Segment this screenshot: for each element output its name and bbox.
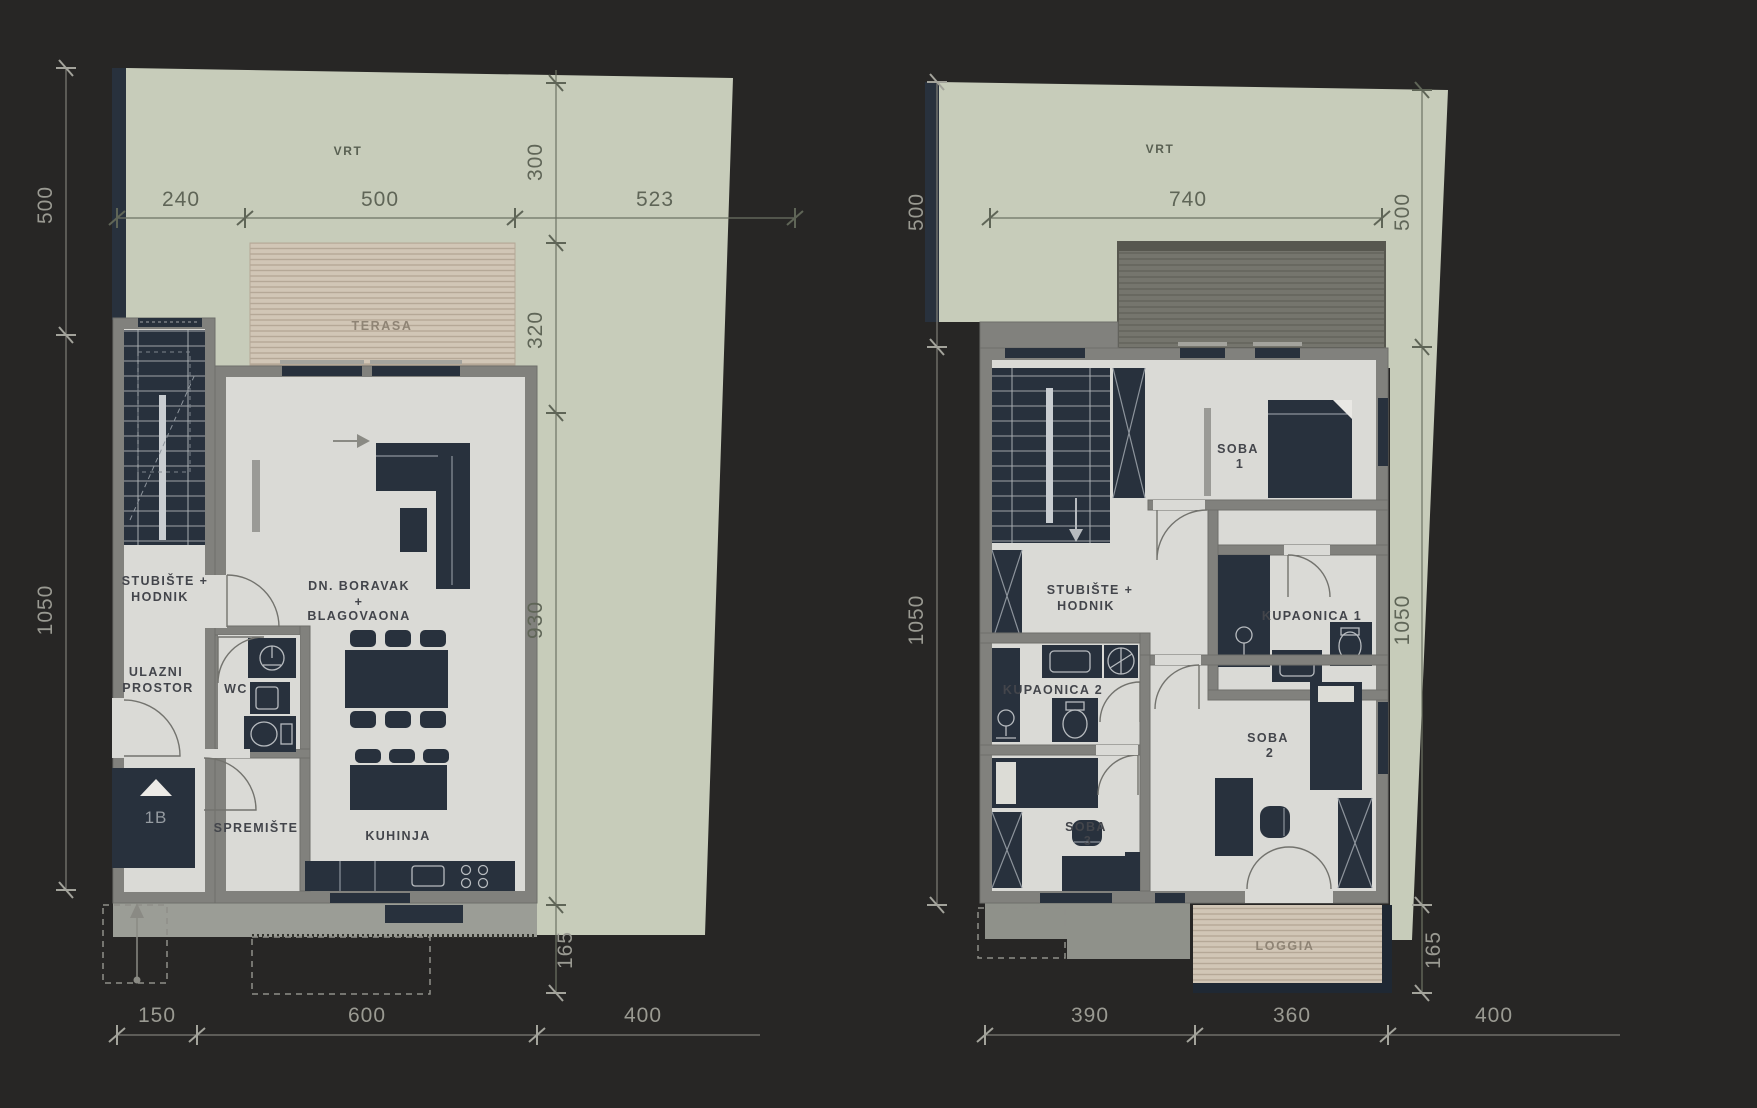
window bbox=[282, 366, 362, 376]
door-gap bbox=[1155, 655, 1201, 665]
kitchen-island bbox=[350, 749, 449, 810]
room-label-living-2: + bbox=[355, 595, 364, 609]
window bbox=[372, 366, 460, 376]
dim-523: 523 bbox=[636, 188, 674, 211]
entry-unit-block: 1B bbox=[112, 768, 195, 868]
dim-500t: 500 bbox=[361, 188, 399, 211]
dim-150: 150 bbox=[138, 1004, 176, 1027]
room-label-soba1-a: SOBA bbox=[1217, 442, 1259, 456]
garden-label: VRT bbox=[1146, 142, 1175, 156]
dim-930: 930 bbox=[524, 601, 547, 639]
doormat bbox=[385, 905, 463, 923]
terrace-area bbox=[250, 243, 515, 365]
wall bbox=[980, 633, 1150, 643]
chair-icon bbox=[1260, 806, 1290, 838]
entry-door-gap bbox=[112, 698, 125, 758]
window bbox=[1180, 348, 1225, 358]
bed bbox=[1268, 400, 1352, 498]
staircase bbox=[124, 330, 205, 545]
pillow bbox=[996, 762, 1016, 804]
window bbox=[330, 893, 410, 903]
dim-240: 240 bbox=[162, 188, 200, 211]
room-label-living-3: BLAGOVAONA bbox=[307, 609, 410, 623]
window bbox=[1040, 893, 1112, 903]
room-label-stairs-1: STUBIŠTE + bbox=[122, 573, 209, 588]
garden-boundary-wall bbox=[112, 68, 126, 320]
room-label-stairs-2: HODNIK bbox=[131, 590, 189, 604]
door-gap bbox=[1284, 545, 1330, 555]
dim-165: 165 bbox=[554, 931, 577, 969]
room-label-soba1-b: 1 bbox=[1236, 457, 1244, 471]
shower-icon bbox=[1104, 645, 1138, 678]
room-label-stairs-2: HODNIK bbox=[1057, 599, 1115, 613]
room-label-soba2-b: 2 bbox=[1266, 746, 1274, 760]
window-sill bbox=[1253, 342, 1302, 346]
window-sill bbox=[1178, 342, 1227, 346]
staircase bbox=[992, 368, 1110, 543]
dim-165: 165 bbox=[1422, 931, 1445, 969]
pavement bbox=[113, 903, 537, 937]
room-label-soba2-a: SOBA bbox=[1247, 731, 1289, 745]
dim-400: 400 bbox=[1475, 1004, 1513, 1027]
toilet-icon bbox=[1052, 698, 1098, 742]
room-label-kitchen: KUHINJA bbox=[365, 829, 430, 843]
room-label-entry-2: PROSTOR bbox=[122, 681, 193, 695]
garden-label: VRT bbox=[334, 144, 363, 158]
unit-label: 1B bbox=[145, 808, 168, 827]
room-label-entry-1: ULAZNI bbox=[129, 665, 183, 679]
dim-1050l: 1050 bbox=[905, 595, 928, 646]
door-gap bbox=[204, 749, 250, 758]
dim-500l: 500 bbox=[905, 193, 928, 231]
door-gap bbox=[205, 575, 227, 628]
door-gap bbox=[1153, 500, 1205, 510]
window bbox=[1378, 398, 1388, 466]
dim-1050r: 1050 bbox=[1391, 595, 1414, 646]
wall bbox=[1208, 510, 1218, 700]
tv-panel bbox=[252, 460, 260, 532]
door-gap bbox=[1096, 745, 1138, 755]
dim-600: 600 bbox=[348, 1004, 386, 1027]
dim-1050l: 1050 bbox=[34, 585, 57, 636]
window bbox=[1155, 893, 1185, 903]
loggia-label: LOGGIA bbox=[1256, 939, 1315, 953]
dim-300: 300 bbox=[524, 143, 547, 181]
room-label-bath1: KUPAONICA 1 bbox=[1262, 609, 1362, 623]
room-label-living-1: DN. BORAVAK bbox=[308, 579, 410, 593]
window bbox=[1255, 348, 1300, 358]
floor-plan-sheet: 1B bbox=[0, 0, 1757, 1108]
window bbox=[1005, 348, 1085, 358]
room-label-wc: WC bbox=[224, 682, 248, 696]
terrace-label: TERASA bbox=[352, 319, 413, 333]
pavement bbox=[1067, 937, 1190, 959]
tv-panel bbox=[1204, 408, 1211, 496]
kitchen-counter bbox=[305, 861, 515, 891]
room-label-storage: SPREMIŠTE bbox=[214, 820, 299, 835]
dim-740: 740 bbox=[1169, 188, 1207, 211]
dim-500l: 500 bbox=[34, 186, 57, 224]
roof-deck-area bbox=[1118, 242, 1385, 348]
window bbox=[1378, 702, 1388, 774]
vanity bbox=[1042, 645, 1102, 678]
dim-320: 320 bbox=[524, 311, 547, 349]
floor-plan-drawing: 1B bbox=[0, 0, 1757, 1108]
dim-400: 400 bbox=[624, 1004, 662, 1027]
room-label-stairs-1: STUBIŠTE + bbox=[1047, 582, 1134, 597]
room-label-soba3-a: SOBA bbox=[1065, 820, 1107, 834]
desk-top bbox=[1062, 856, 1140, 891]
wall bbox=[1140, 655, 1150, 891]
room-label-soba3-b: 3 bbox=[1084, 834, 1092, 848]
desk bbox=[1215, 778, 1253, 856]
dim-500r: 500 bbox=[1391, 193, 1414, 231]
coffee-table bbox=[400, 508, 427, 552]
dim-360: 360 bbox=[1273, 1004, 1311, 1027]
door-gap bbox=[1245, 891, 1333, 903]
toilet-icon bbox=[244, 716, 296, 752]
dim-390: 390 bbox=[1071, 1004, 1109, 1027]
dining-table-set bbox=[345, 630, 448, 728]
room-label-bath2: KUPAONICA 2 bbox=[1003, 683, 1103, 697]
pillow bbox=[1318, 686, 1354, 702]
ground-floor-plan: 1B bbox=[34, 60, 803, 1045]
